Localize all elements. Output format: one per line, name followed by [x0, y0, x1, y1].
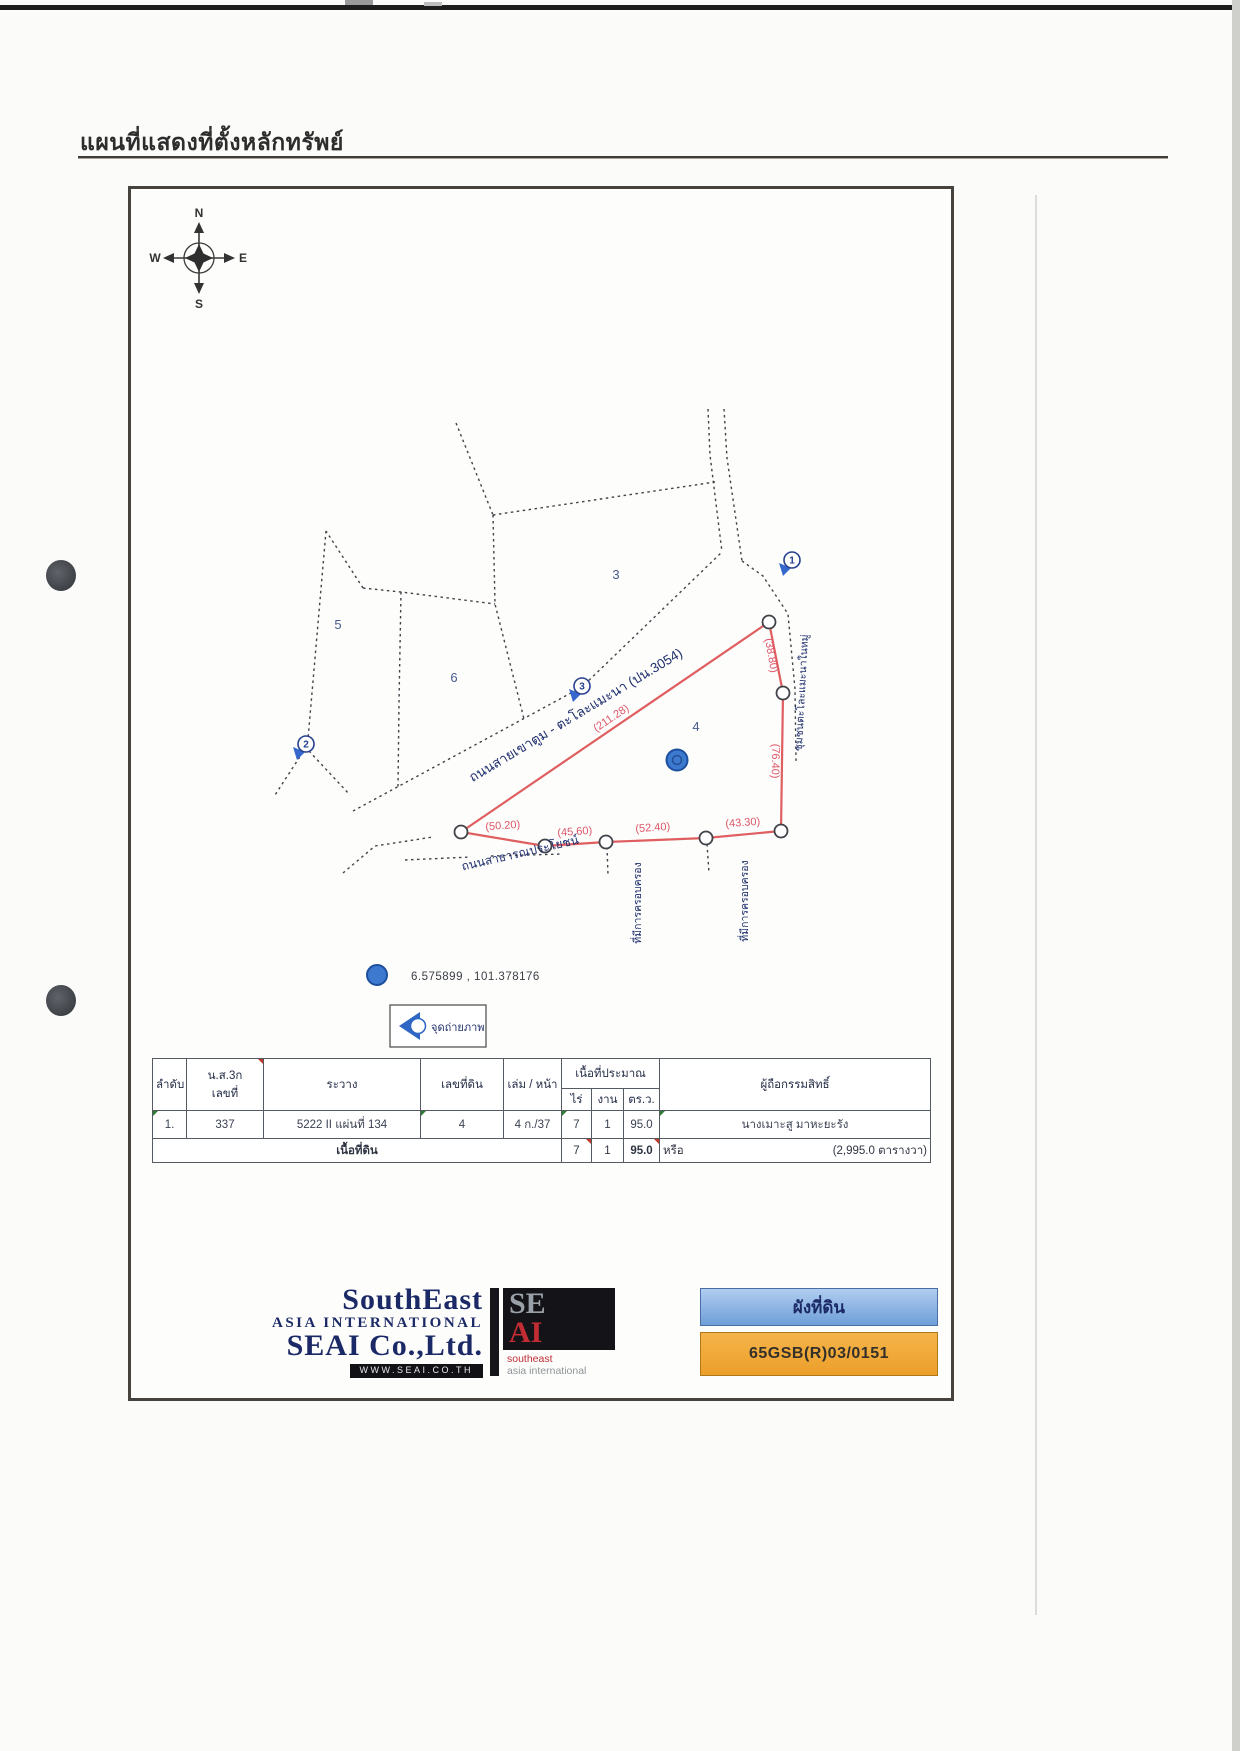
parcel-4-label: 4	[692, 719, 699, 734]
logo-sub-southeast: southeast	[503, 1353, 615, 1365]
branch-road-left-edge	[708, 409, 722, 552]
cell-parcel-no: 4	[421, 1111, 504, 1139]
measurement-e: (76.40)	[769, 744, 782, 779]
parcel-5-label: 5	[334, 617, 341, 632]
hole-punch	[46, 560, 76, 591]
measurement-ne: (38.80)	[762, 637, 780, 673]
measurement-s1: (50.20)	[485, 819, 521, 833]
measurement-s4: (43.30)	[725, 816, 761, 830]
legend-label: จุดถ่ายภาพ	[431, 1022, 485, 1034]
compass-label-s: S	[195, 297, 203, 311]
scan-artifact	[424, 2, 442, 6]
col-header-area-group: เนื้อที่ประมาณ	[562, 1059, 660, 1089]
hole-punch	[46, 985, 76, 1016]
possession-tick	[607, 847, 608, 875]
logo-sub-asia-international: asia international	[503, 1365, 615, 1377]
coordinates-text: 6.575899 , 101.378176	[411, 971, 540, 983]
parcel-6-top-edge	[363, 588, 495, 604]
doc-type-badge: ผังที่ดิน	[700, 1288, 938, 1326]
company-logo-text: SouthEast ASIA INTERNATIONAL SEAI Co.,Lt…	[131, 1285, 483, 1378]
marker-1: 1	[779, 552, 800, 576]
marker-3: 3	[569, 678, 590, 702]
cell-ngan: 1	[592, 1111, 624, 1139]
main-road-label: ถนนสายเขาตูม - ตะโละแมะนา (ปน.3054)	[466, 644, 686, 785]
cell-sheet: 5222 II แผ่นที่ 134	[264, 1111, 421, 1139]
cell-deed-no: 337	[187, 1111, 264, 1139]
company-name-bottom: SEAI Co.,Ltd.	[131, 1331, 483, 1362]
total-ngan: 1	[592, 1139, 624, 1163]
main-road-lower-edge	[343, 837, 433, 873]
table-row: 1. 337 5222 II แผ่นที่ 134 4 4 ก./37 7 1…	[153, 1111, 931, 1139]
col-header-parcel-no: เลขที่ดิน	[421, 1059, 504, 1111]
logo-ai: AI	[509, 1318, 609, 1347]
parcel-5-top-edge	[326, 531, 363, 588]
seai-logo-box: SE AI	[503, 1288, 615, 1350]
parcel-5-6-divider	[398, 592, 401, 787]
col-header-ngan: งาน	[592, 1089, 624, 1111]
parcel-3-top-edge	[493, 482, 715, 515]
photo-point-marker	[667, 750, 688, 771]
total-square-wa: (2,995.0 ตารางวา)	[833, 1142, 927, 1160]
page-fold-line	[1035, 195, 1037, 1615]
parcel-3-corner-line	[456, 423, 493, 515]
deed-header-line1: น.ส.3ก	[190, 1067, 260, 1085]
svg-text:1: 1	[789, 556, 795, 567]
or-label: หรือ	[663, 1142, 684, 1160]
total-or-cell: หรือ (2,995.0 ตารางวา)	[660, 1139, 931, 1163]
cell-rai: 7	[562, 1111, 592, 1139]
col-header-owner: ผู้ถือกรรมสิทธิ์	[660, 1059, 931, 1111]
col-header-seq: ลำดับ	[153, 1059, 187, 1111]
company-name-top: SouthEast	[131, 1285, 483, 1316]
scanned-document-page: แผนที่แสดงที่ตั้งหลักทรัพย์ N S W E	[0, 0, 1240, 1751]
logo-se: SE	[509, 1289, 609, 1318]
cell-sqwa: 95.0	[624, 1111, 660, 1139]
land-plot-map: N S W E	[131, 189, 951, 1061]
parcel-3-label: 3	[612, 567, 619, 582]
compass-rose: N S W E	[149, 206, 247, 311]
table-total-row: เนื้อที่ดิน 7 1 95.0 หรือ (2,995.0 ตาราง…	[153, 1139, 931, 1163]
compass-label-e: E	[239, 251, 247, 265]
map-frame: N S W E	[128, 186, 954, 1401]
doc-number-badge: 65GSB(R)03/0151	[700, 1332, 938, 1376]
compass-west-arrow	[163, 253, 174, 263]
total-rai: 7	[562, 1139, 592, 1163]
measurement-s3: (52.40)	[635, 821, 671, 835]
svg-text:2: 2	[303, 740, 309, 751]
total-sqwa: 95.0	[624, 1139, 660, 1163]
col-header-book-page: เล่ม / หน้า	[504, 1059, 562, 1111]
possession-label-right: ที่มีการครอบครอง	[737, 860, 751, 941]
gps-coordinates: 6.575899 , 101.378176	[367, 965, 540, 985]
parcel-4-survey-polygon	[461, 622, 783, 846]
compass-south-arrow	[194, 283, 204, 294]
deed-header-line2: เลขที่	[190, 1085, 260, 1103]
main-road-upper-edge	[353, 552, 722, 811]
scan-artifact	[345, 0, 373, 5]
compass-north-arrow	[194, 222, 204, 233]
cell-seq: 1.	[153, 1111, 187, 1139]
boundary-ray	[309, 751, 350, 795]
land-detail-table: ลำดับ น.ส.3ก เลขที่ ระวาง เลขที่ดิน เล่ม…	[152, 1058, 931, 1163]
photo-point-icon	[367, 965, 387, 985]
parcel-6-label: 6	[450, 670, 457, 685]
parcel-boundaries-dotted	[275, 409, 796, 875]
logo-divider-bar	[490, 1288, 499, 1376]
cell-owner: นางเมาะสู มาหะยะรัง	[660, 1111, 931, 1139]
col-header-sheet: ระวาง	[264, 1059, 421, 1111]
page-edge-shadow	[1232, 0, 1240, 1751]
total-label: เนื้อที่ดิน	[153, 1139, 562, 1163]
col-header-rai: ไร่	[562, 1089, 592, 1111]
branch-road-right-edge	[724, 409, 742, 561]
compass-label-n: N	[195, 206, 204, 220]
possession-tick	[707, 844, 709, 873]
compass-label-w: W	[149, 251, 161, 265]
possession-label-left: ที่มีการครอบครอง	[630, 862, 644, 943]
title-underline	[78, 156, 1168, 159]
cell-book-page: 4 ก./37	[504, 1111, 562, 1139]
col-header-sqwa: ตร.ว.	[624, 1089, 660, 1111]
marker-2: 2	[293, 736, 314, 760]
company-website: WWW.SEAI.CO.TH	[350, 1364, 484, 1377]
col-header-deed: น.ส.3ก เลขที่	[187, 1059, 264, 1111]
legend-photo-point: จุดถ่ายภาพ	[390, 1005, 486, 1047]
seai-logo: SE AI southeast asia international	[503, 1288, 615, 1377]
compass-east-arrow	[224, 253, 235, 263]
parcel-5-left-edge	[308, 531, 326, 739]
scan-artifact-top-line	[0, 5, 1240, 10]
svg-text:3: 3	[579, 682, 585, 693]
boundary-ray	[275, 752, 303, 795]
public-road-label: ถนนสาธารณประโยชน์	[460, 833, 580, 874]
parcel-3-left-edge	[493, 515, 524, 719]
